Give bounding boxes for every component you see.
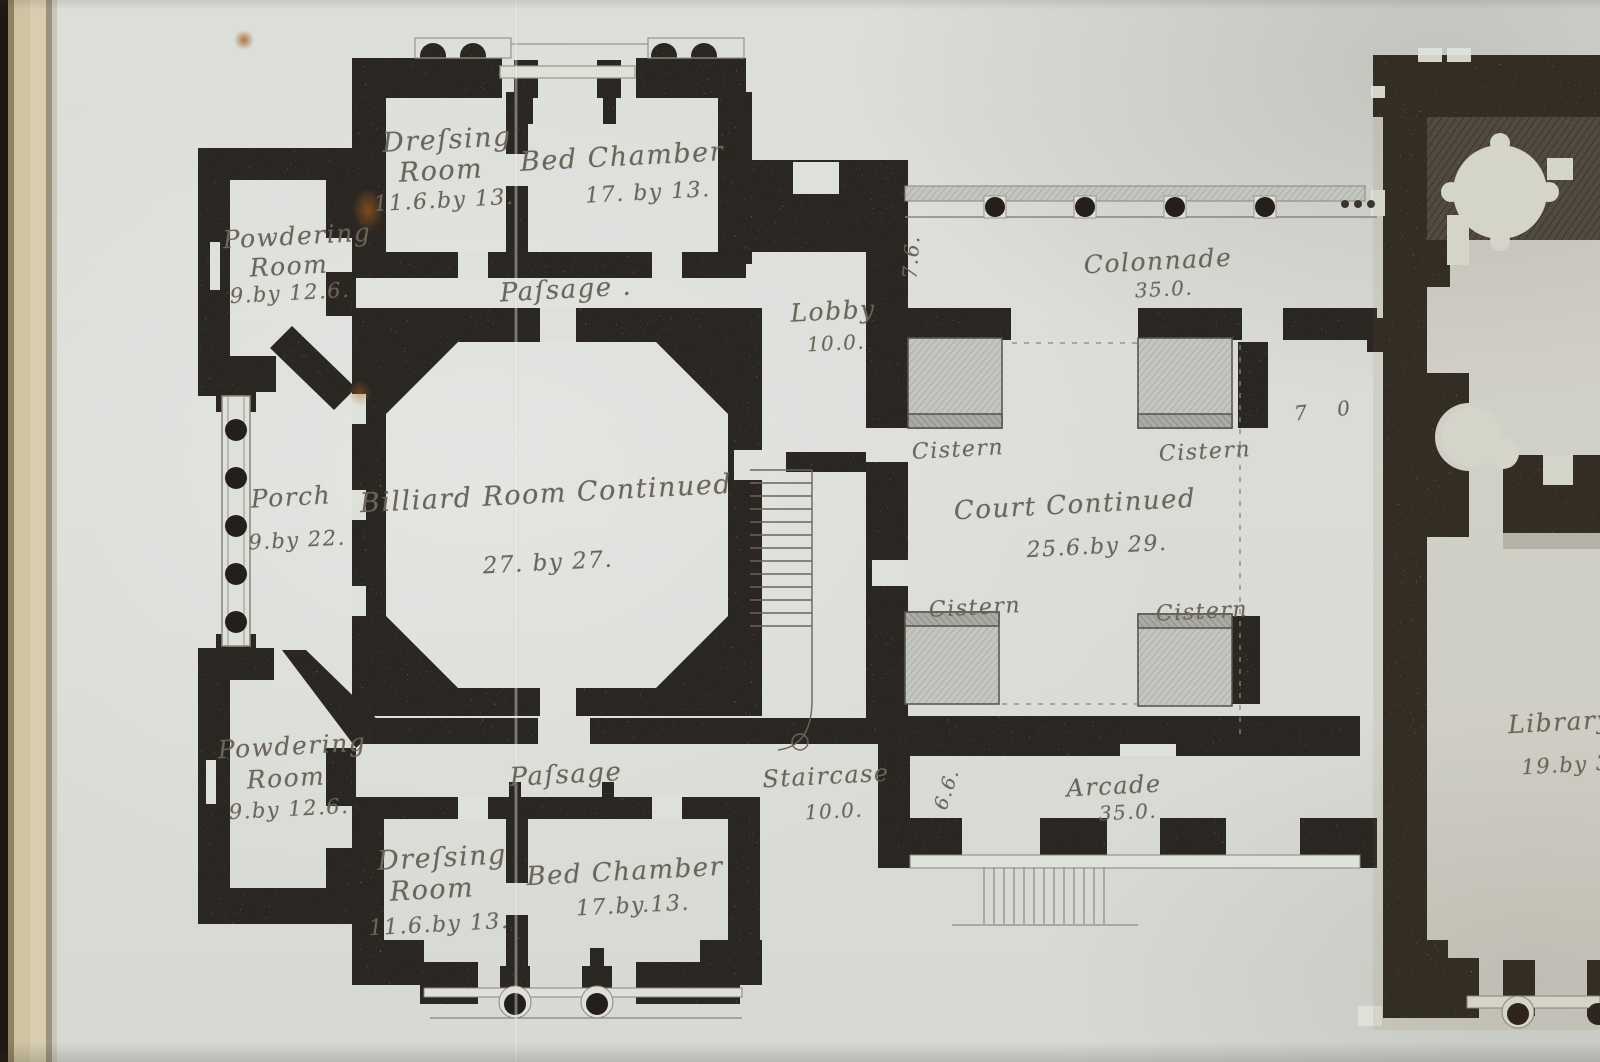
label-cistern-top-right: Cistern: [1158, 437, 1251, 467]
framed-floorplan-photo: Dreſsing Room 11.6.by 13. Bed Chamber 17…: [0, 0, 1600, 1062]
label-powdering-room-top: Room: [249, 249, 329, 282]
frame-mat-edge: [0, 0, 60, 1062]
label-cistern-bottom-left: Cistern: [928, 593, 1021, 623]
label-lobby-dim: 10.0.: [806, 329, 866, 356]
annotation-colonnade-depth: 7.6.: [897, 234, 924, 280]
label-porch: Porch: [250, 480, 332, 513]
label-library-dim: 19.by 3: [1521, 751, 1600, 780]
colonnade-band: [905, 186, 1377, 218]
label-cistern-top-left: Cistern: [911, 435, 1004, 465]
paper-crease: [514, 0, 518, 1062]
label-cistern-bottom-right: Cistern: [1155, 597, 1248, 627]
label-lobby: Lobby: [790, 294, 877, 327]
label-library: Library: [1507, 705, 1600, 739]
photo-shadow: [0, 1042, 1600, 1062]
photo-shadow: [0, 0, 1600, 10]
label-colonnade-dim: 35.0.: [1134, 275, 1194, 302]
label-arcade: Arcade: [1066, 770, 1162, 803]
label-passage-bottom: Paſsage: [509, 757, 623, 793]
label-arcade-dim: 35.0.: [1098, 798, 1158, 825]
label-porch-dim: 9.by 22.: [248, 525, 347, 554]
floorplan-drawing: [0, 0, 1600, 1062]
label-staircase-dim: 10.0.: [804, 797, 864, 824]
arcade-stylobate-and-stair: [910, 855, 1360, 925]
east-portico: [1467, 533, 1600, 1028]
label-dressing-room-bottom: Room: [389, 872, 475, 907]
label-powdering-room-bottom: Room: [246, 761, 326, 794]
porch-colonnade: [222, 396, 250, 646]
label-dressing-room-top: Room: [398, 153, 484, 188]
